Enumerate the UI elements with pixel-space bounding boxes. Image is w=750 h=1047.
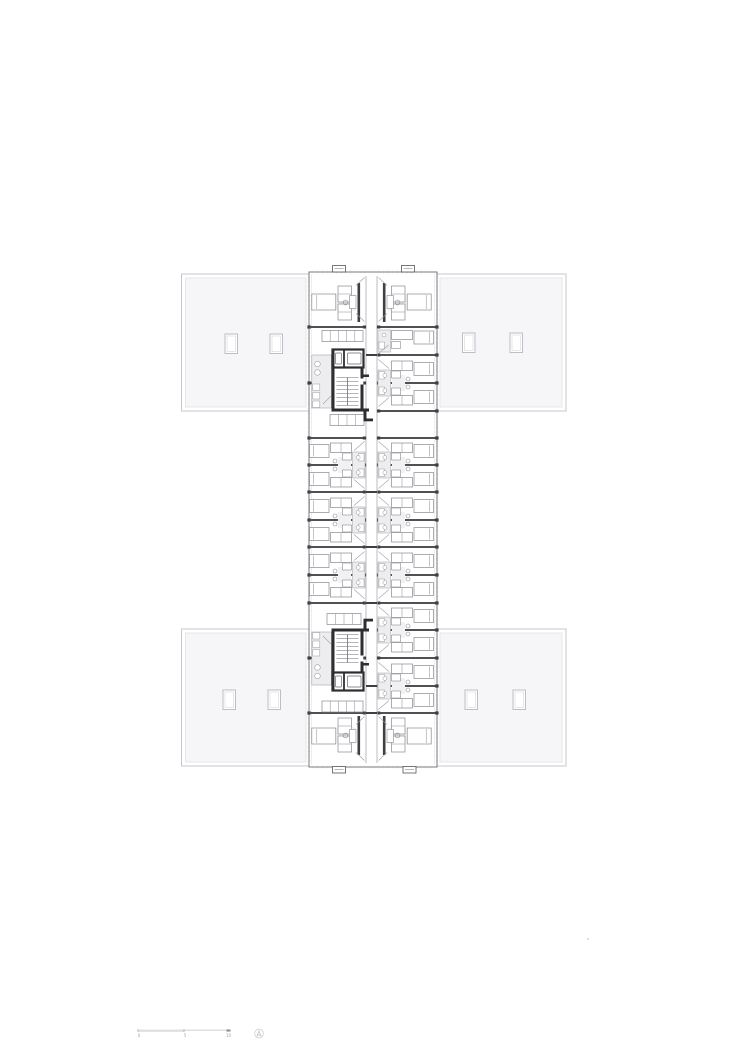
wardrobe: [331, 588, 352, 598]
wardrobe: [331, 533, 352, 543]
skylight: [513, 690, 526, 710]
bathroom-pod: [378, 370, 391, 396]
bathroom-pod: [378, 507, 391, 533]
wardrobe: [392, 443, 413, 453]
corridor-crossing-wall: [366, 712, 377, 714]
bed: [414, 583, 434, 596]
desk: [343, 580, 352, 587]
wing-roof-bottom-right: [436, 629, 566, 766]
desk: [387, 296, 394, 309]
wardrobe: [331, 553, 352, 563]
skylight: [510, 333, 523, 353]
skylight: [465, 690, 478, 710]
shelf-row: [322, 701, 363, 712]
bed: [407, 728, 431, 744]
elevator: [333, 350, 364, 368]
wardrobe: [392, 533, 413, 543]
facade-tab: [333, 767, 346, 774]
bed: [414, 363, 434, 376]
wardrobe: [392, 643, 413, 653]
wardrobe: [392, 699, 413, 709]
desk: [350, 730, 357, 743]
scale-bar-label-0: 0: [134, 1034, 144, 1038]
skylight: [270, 334, 283, 354]
scale-bar-label-5: 5: [180, 1034, 190, 1038]
corridor-crossing-wall: [366, 685, 377, 687]
wing-roof-bottom-left: [182, 629, 311, 766]
desk: [392, 691, 401, 698]
wardrobe: [392, 361, 413, 371]
wardrobe: [392, 478, 413, 488]
bed: [414, 638, 434, 651]
bathroom-pod: [378, 673, 391, 699]
bed: [414, 694, 434, 707]
desk: [387, 730, 394, 743]
bed: [312, 294, 336, 310]
wardrobe: [392, 396, 413, 406]
wc-pod: [312, 355, 332, 408]
bed: [312, 728, 336, 744]
elevator: [333, 673, 364, 691]
north-arrow-icon: [255, 1029, 264, 1038]
bed: [310, 473, 330, 486]
wardrobe: [392, 498, 413, 508]
wc-pod: [312, 632, 332, 685]
bathroom-pod: [378, 562, 391, 588]
desk: [343, 470, 352, 477]
desk: [392, 580, 401, 587]
corridor-crossing-wall: [366, 491, 377, 493]
wardrobe: [392, 588, 413, 598]
desk: [343, 525, 352, 532]
bathroom-pod: [378, 452, 391, 478]
shelf-row: [330, 415, 364, 426]
bed: [310, 583, 330, 596]
desk: [392, 525, 401, 532]
bathroom-pod: [353, 452, 366, 478]
desk: [343, 453, 352, 460]
wardrobe: [331, 498, 352, 508]
wardrobe: [331, 443, 352, 453]
bed: [414, 500, 434, 513]
bed: [414, 666, 434, 679]
bed: [414, 473, 434, 486]
corridor-crossing-wall: [366, 546, 377, 548]
desk: [350, 296, 357, 309]
bed: [310, 555, 330, 568]
bed: [310, 500, 330, 513]
wardrobe: [392, 664, 413, 674]
desk: [392, 453, 401, 460]
print-speck: [587, 938, 589, 940]
skylight: [223, 690, 236, 710]
facade-tab: [402, 266, 415, 273]
skylight: [463, 333, 476, 353]
bed: [414, 391, 434, 404]
facade-tab: [333, 266, 346, 273]
bed: [414, 528, 434, 541]
wardrobe: [392, 608, 413, 618]
bed: [407, 294, 431, 310]
bathroom-pod: [353, 507, 366, 533]
bed: [310, 445, 330, 458]
desk: [392, 635, 401, 642]
shelf-row: [322, 331, 363, 342]
bathroom-pod: [353, 562, 366, 588]
scale-bar-label-10: 10: [224, 1034, 234, 1038]
bed: [414, 445, 434, 458]
desk: [343, 508, 352, 515]
desk: [343, 563, 352, 570]
desk: [392, 371, 401, 378]
desk: [392, 674, 401, 681]
desk: [392, 508, 401, 515]
desk: [392, 563, 401, 570]
wardrobe: [331, 478, 352, 488]
corridor-crossing-wall: [366, 354, 377, 356]
bed: [310, 528, 330, 541]
skylight: [268, 690, 281, 710]
desk: [392, 388, 401, 395]
bed: [414, 610, 434, 623]
floor-plan: [0, 0, 750, 1047]
facade-tab: [403, 767, 416, 774]
skylight: [225, 334, 238, 354]
wardrobe: [392, 553, 413, 563]
shelf-row: [327, 614, 361, 625]
drawing-sheet: { "page": { "background": "#ffffff" }, "…: [0, 0, 750, 1047]
wing-roof-top-right: [436, 274, 566, 411]
wing-roof-top-left: [182, 274, 311, 411]
corridor-crossing-wall: [366, 602, 377, 604]
desk: [392, 618, 401, 625]
scale-bar: [138, 1029, 231, 1032]
desk: [392, 470, 401, 477]
bathroom-pod: [378, 617, 391, 643]
bed: [414, 555, 434, 568]
